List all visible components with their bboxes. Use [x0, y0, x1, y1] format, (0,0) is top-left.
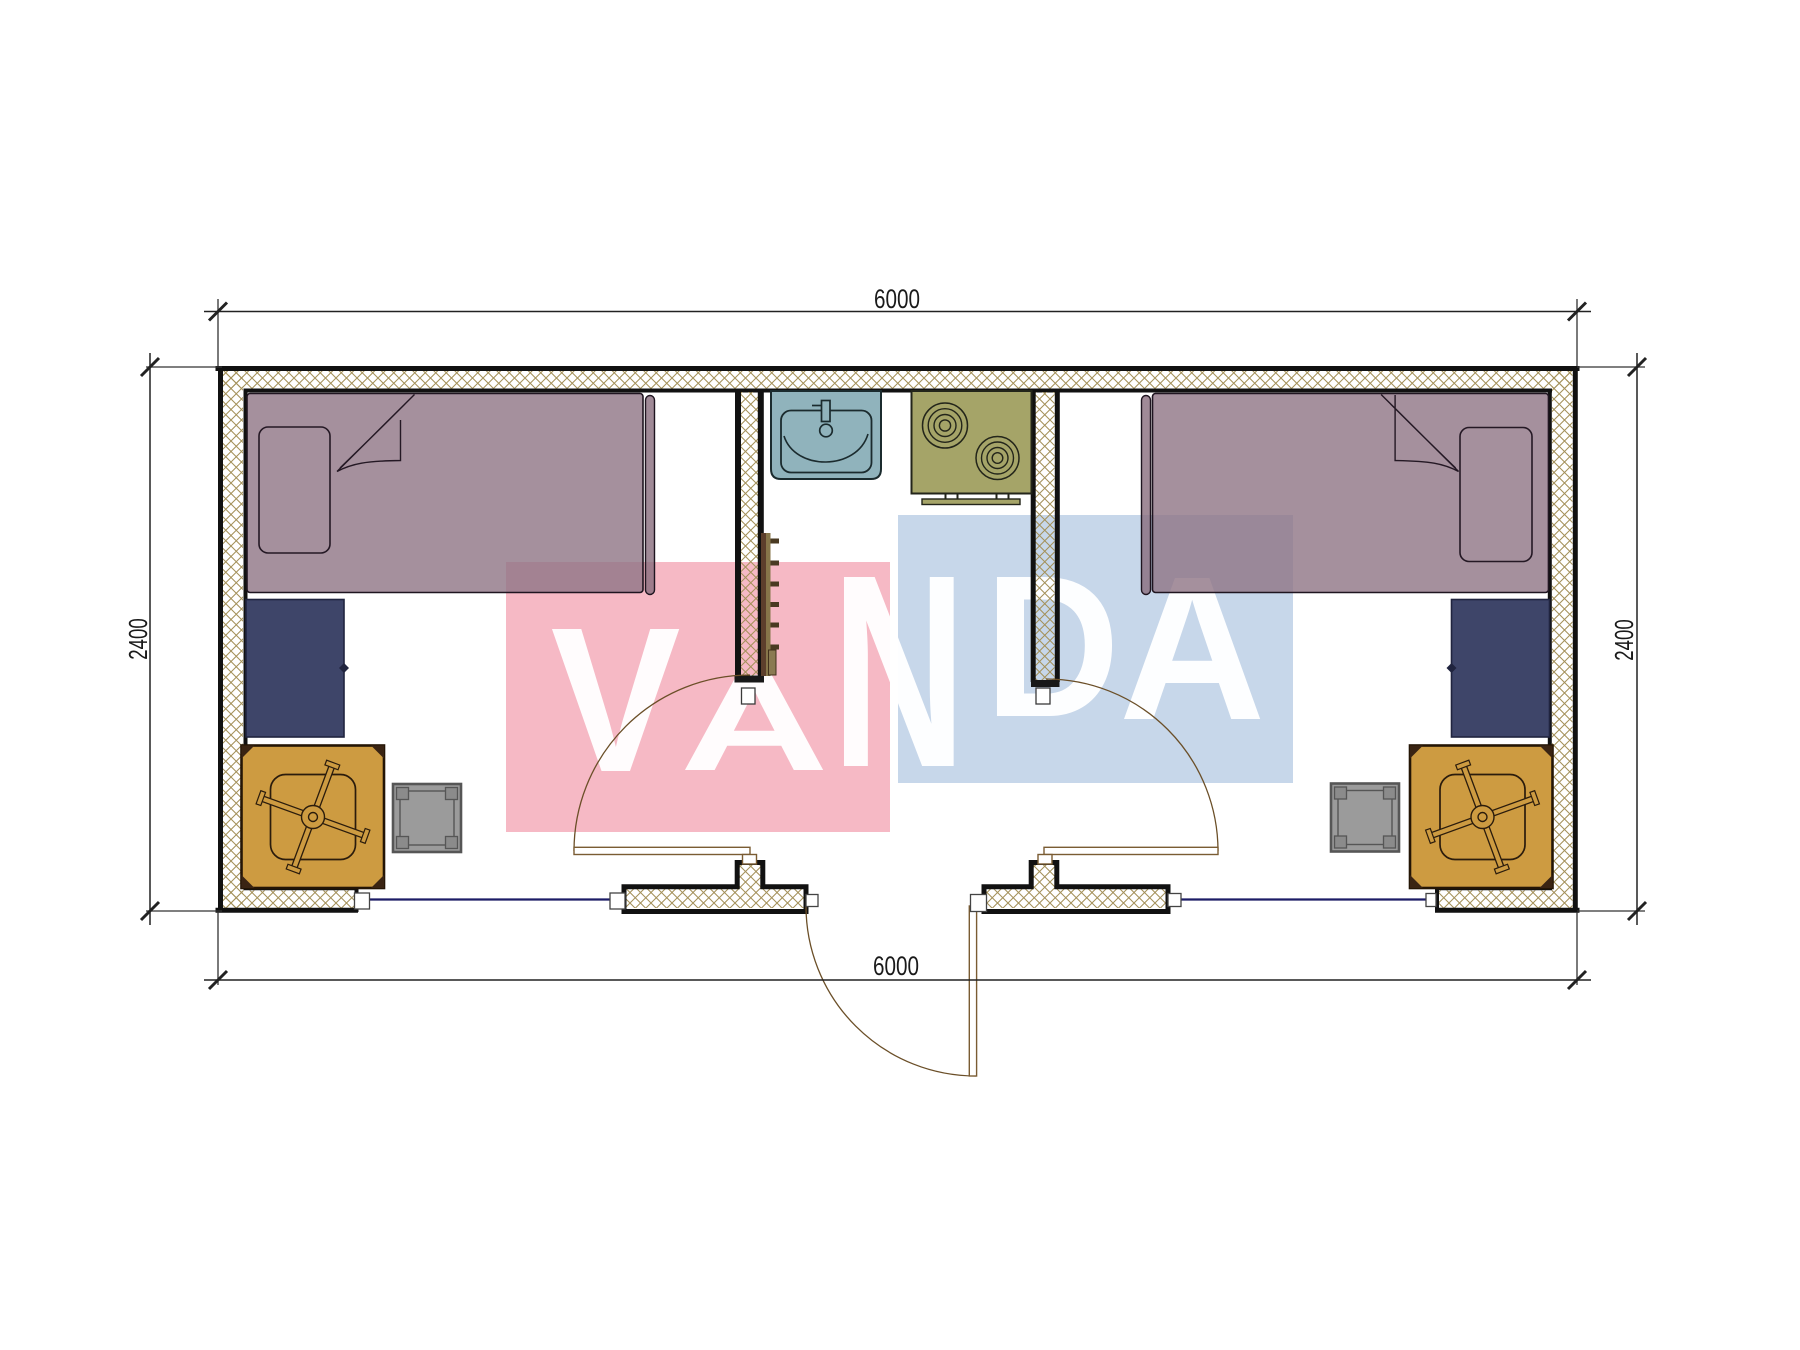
svg-text:2400: 2400: [1610, 619, 1639, 660]
svg-text:2400: 2400: [124, 618, 153, 659]
svg-text:6000: 6000: [874, 284, 920, 314]
svg-text:6000: 6000: [873, 951, 919, 981]
svg-text:N: N: [832, 517, 967, 825]
